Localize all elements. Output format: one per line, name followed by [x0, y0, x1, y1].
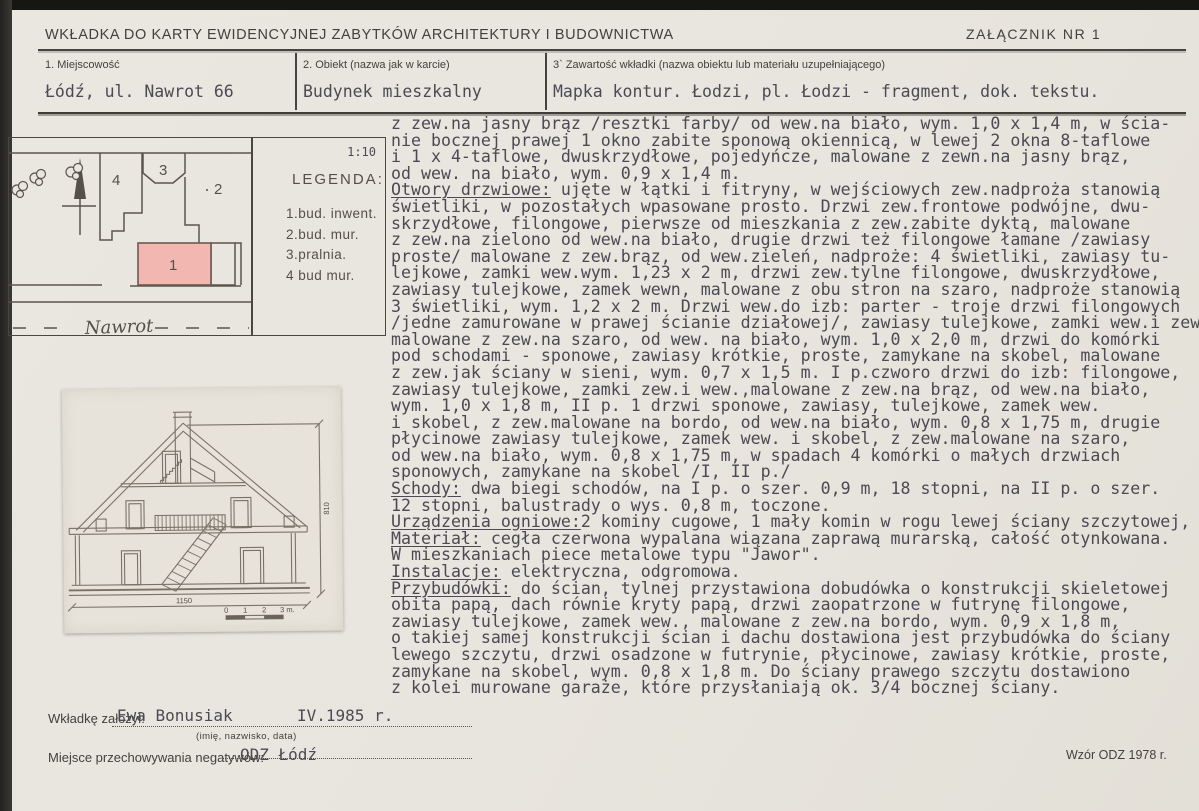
field-label-zawartosc: 3` Zawartość wkładki (nazwa obiektu lub …: [553, 59, 885, 71]
field-value-zawartosc: Mapka kontur. Łodzi, pl. Łodzi - fragmen…: [553, 82, 1099, 101]
scan-edge-top: [0, 0, 1199, 10]
legend-item: 1.bud. inwent.: [286, 204, 377, 225]
trees-icon: [12, 164, 83, 198]
street-name: Nawrot: [83, 316, 154, 334]
map-label-1: 1: [169, 257, 177, 274]
legend-item: 3.pralnia.: [286, 245, 377, 266]
site-plan-drawing: 4 3 2 1 Nawrot: [9, 138, 251, 334]
building-cross-section: 810 1150 0 1 2 3 m.: [62, 387, 344, 634]
site-plan-map: 4 3 2 1 Nawrot: [8, 137, 253, 336]
field-label-obiekt: 2. Obiekt (nazwa jak w karcie): [303, 59, 450, 71]
field-value-obiekt: Budynek mieszkalny: [303, 82, 482, 101]
map-label-4: 4: [112, 172, 120, 189]
legend-item: 4 bud mur.: [286, 266, 377, 287]
scalebar-1: 1: [243, 606, 247, 615]
founder-date: IV.1985 r.: [297, 706, 393, 725]
dim-width: 1150: [176, 596, 192, 605]
scalebar-0: 0: [224, 606, 228, 615]
legend-items: 1.bud. inwent.2.bud. mur.3.pralnia.4 bud…: [286, 204, 377, 286]
pattern-note: Wzór ODZ 1978 r.: [1066, 748, 1167, 762]
scalebar-segment: [264, 615, 283, 619]
field-label-miejscowosc: 1. Miejscowość: [45, 59, 120, 71]
form-fields-row: 1. Miejscowość Łódź, ul. Nawrot 66 2. Ob…: [38, 51, 1186, 113]
page-title: WKŁADKA DO KARTY EWIDENCYJNEJ ZABYTKÓW A…: [45, 27, 674, 43]
map-label-2: 2: [214, 181, 222, 198]
field-value-miejscowosc: Łódź, ul. Nawrot 66: [45, 82, 234, 101]
scan-edge-left: [0, 0, 12, 811]
legend-title: LEGENDA:: [292, 171, 384, 188]
field-divider: [295, 53, 297, 110]
scalebar-3: 3 m.: [280, 605, 295, 614]
map-scale: 1:10: [347, 145, 376, 159]
typed-description: z zew.na jasny brąz /resztki farby/ od w…: [391, 116, 1196, 697]
scalebar-segment: [226, 616, 245, 620]
legend-item: 2.bud. mur.: [286, 225, 377, 246]
founder-note: (imię, nazwisko, data): [196, 731, 297, 742]
negatives-value: ODZ Łódź: [240, 745, 317, 764]
field-divider: [545, 53, 547, 110]
founder-name: Ewa Bonusiak: [117, 706, 233, 725]
text-line: z zew.jak ściany w sieni, wym. 0,7 x 1,5…: [391, 365, 1196, 382]
dim-height: 810: [322, 502, 331, 515]
map-label-3: 3: [159, 162, 167, 179]
elevation-drawing-patch: 810 1150 0 1 2 3 m.: [62, 387, 344, 634]
legend-box: 1:10 LEGENDA: 1.bud. inwent.2.bud. mur.3…: [251, 137, 386, 336]
attachment-number: ZAŁĄCZNIK NR 1: [966, 26, 1101, 42]
text-line: z kolei murowane garaże, które przysłani…: [391, 680, 1196, 697]
scalebar-2: 2: [262, 605, 266, 614]
scanned-heritage-card: WKŁADKA DO KARTY EWIDENCYJNEJ ZABYTKÓW A…: [0, 0, 1199, 811]
